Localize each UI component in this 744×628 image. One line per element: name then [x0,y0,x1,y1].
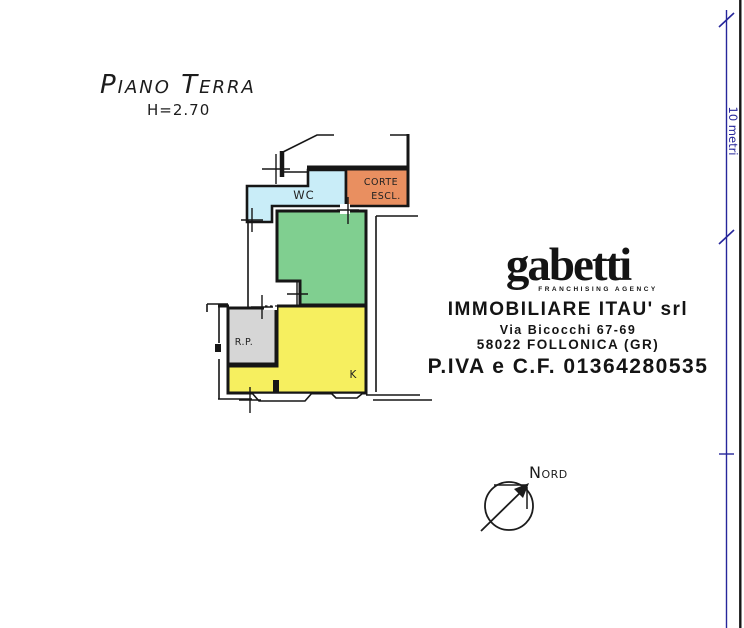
room-label-corte-1: CORTE [364,177,398,188]
agency-logo: gabetti [418,244,718,286]
room-living [277,211,366,305]
north-compass-icon [481,482,533,531]
floorplan-page: WC CORTE ESCL. R.P. K 10 metri Piano Ter… [0,0,744,628]
north-label: Nord [529,463,568,482]
ceiling-height-label: H=2.70 [147,101,210,119]
room-rp [228,308,276,364]
agency-company-name: IMMOBILIARE ITAU' srl [418,299,718,321]
wall-pier-bottom [273,380,279,393]
wall-block-left [215,344,221,352]
room-label-wc: WC [293,188,314,202]
scale-label: 10 metri [726,107,740,156]
agency-vat-number: P.IVA e C.F. 01364280535 [418,355,718,379]
agency-stamp: gabetti FRANCHISING AGENCY IMMOBILIARE I… [418,244,718,379]
agency-address: Via Bicocchi 67-69 [418,323,718,337]
room-label-corte-2: ESCL. [371,191,400,202]
room-label-rp: R.P. [235,337,254,348]
agency-city: 58022 FOLLONICA (GR) [418,337,718,352]
room-label-kitchen: K [350,369,358,381]
step-small [331,393,363,398]
scale-ruler: 10 metri [719,10,740,628]
page-title: Piano Terra [100,70,256,100]
tick-mark [262,154,290,184]
